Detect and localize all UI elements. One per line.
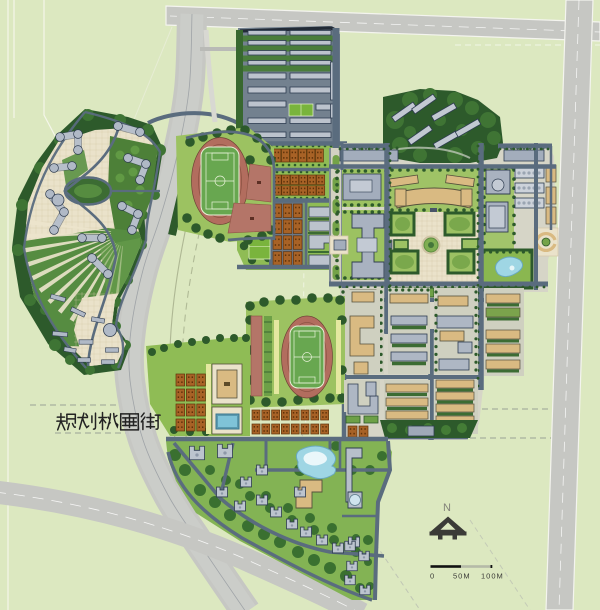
svg-text:50M: 50M [453,572,471,581]
svg-text:0: 0 [430,572,434,581]
svg-text:N: N [443,502,451,514]
svg-text:100M: 100M [481,572,504,581]
